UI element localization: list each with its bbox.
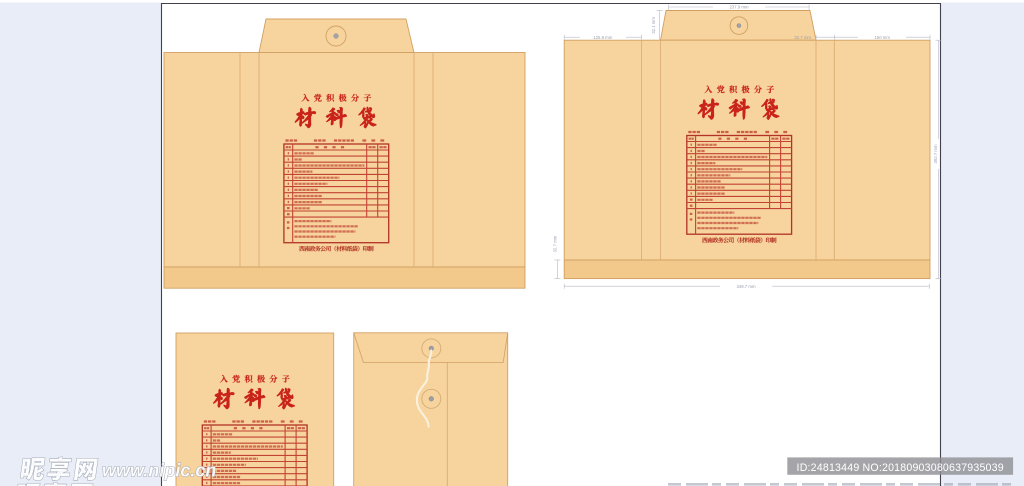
svg-text:392.7 mm: 392.7 mm	[933, 144, 938, 164]
svg-text:125.9 mm: 125.9 mm	[593, 35, 613, 40]
svg-text:32.7 mm: 32.7 mm	[794, 35, 811, 40]
svg-text:32.7 mm: 32.7 mm	[552, 235, 557, 252]
svg-text:32.1 mm: 32.1 mm	[651, 17, 656, 34]
svg-text:www.nipic.cn: www.nipic.cn	[102, 461, 216, 481]
svg-text:150 mm: 150 mm	[874, 35, 890, 40]
svg-text:237.9 mm: 237.9 mm	[729, 5, 749, 10]
svg-text:349.7 mm: 349.7 mm	[736, 284, 756, 289]
svg-text:ID:24813449 NO:201809030806379: ID:24813449 NO:20180903080637935039	[797, 462, 1004, 474]
